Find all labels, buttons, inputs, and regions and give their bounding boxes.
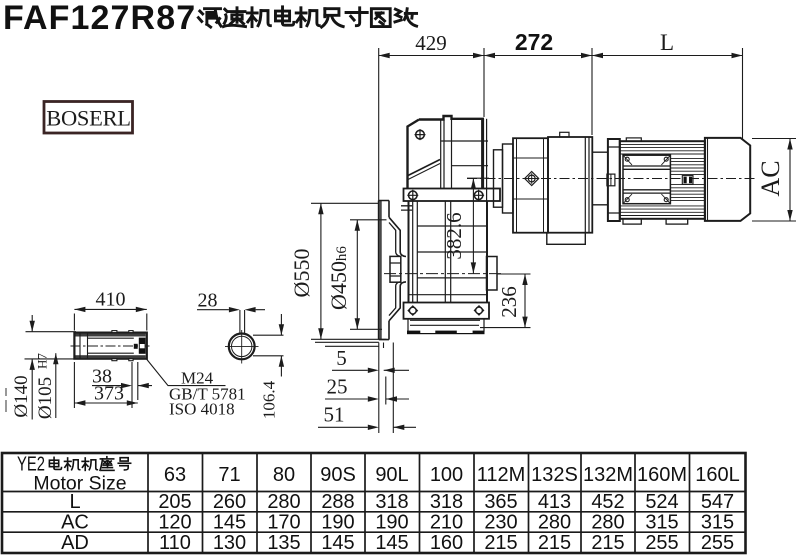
- svg-text:110: 110: [159, 532, 191, 554]
- svg-text:413: 413: [538, 491, 571, 513]
- svg-text:205: 205: [158, 491, 191, 513]
- svg-text:318: 318: [375, 491, 408, 513]
- svg-text:382.6: 382.6: [442, 212, 466, 259]
- svg-text:280: 280: [538, 512, 571, 534]
- svg-text:106.4: 106.4: [260, 380, 279, 419]
- svg-text:280: 280: [267, 491, 300, 513]
- svg-text:318: 318: [430, 491, 463, 513]
- svg-text:210: 210: [430, 512, 463, 534]
- svg-text:215: 215: [591, 532, 624, 554]
- svg-text:120: 120: [158, 512, 191, 534]
- svg-text:160M: 160M: [637, 464, 687, 486]
- svg-text:100: 100: [430, 464, 463, 486]
- svg-text:YE2: YE2: [17, 452, 45, 475]
- svg-text:429: 429: [415, 31, 447, 55]
- svg-text:AD: AD: [61, 532, 89, 554]
- svg-text:FAF127R87: FAF127R87: [3, 0, 196, 37]
- svg-text:280: 280: [591, 512, 624, 534]
- svg-text:315: 315: [701, 512, 734, 534]
- svg-text:130: 130: [213, 532, 246, 554]
- svg-text:524: 524: [645, 491, 678, 513]
- svg-text:5: 5: [336, 346, 347, 370]
- svg-text:190: 190: [321, 512, 354, 534]
- svg-text:Ø140: Ø140: [11, 375, 32, 417]
- svg-text:547: 547: [701, 491, 734, 513]
- svg-text:170: 170: [267, 512, 300, 534]
- svg-text:365: 365: [484, 491, 517, 513]
- svg-text:255: 255: [701, 532, 734, 554]
- svg-text:H7: H7: [35, 353, 50, 369]
- svg-text:215: 215: [484, 532, 517, 554]
- svg-text:145: 145: [321, 532, 354, 554]
- svg-text:71: 71: [218, 464, 240, 486]
- svg-text:145: 145: [375, 532, 408, 554]
- svg-text:51: 51: [324, 403, 345, 427]
- svg-text:L: L: [660, 30, 674, 55]
- svg-text:90L: 90L: [375, 464, 408, 486]
- svg-text:90S: 90S: [320, 464, 356, 486]
- svg-text:315: 315: [645, 512, 678, 534]
- svg-text:260: 260: [213, 491, 246, 513]
- svg-text:160: 160: [430, 532, 463, 554]
- svg-text:288: 288: [321, 491, 354, 513]
- svg-text:L: L: [69, 491, 80, 513]
- svg-text:Ø105: Ø105: [35, 377, 56, 419]
- svg-text:132M: 132M: [583, 464, 633, 486]
- svg-text:145: 145: [213, 512, 246, 534]
- svg-text:272: 272: [515, 29, 553, 55]
- svg-text:132S: 132S: [531, 464, 578, 486]
- svg-text:ISO 4018: ISO 4018: [169, 400, 235, 419]
- svg-text:112M: 112M: [477, 464, 526, 486]
- svg-text:190: 190: [375, 512, 408, 534]
- svg-text:AC: AC: [756, 160, 785, 196]
- svg-text:135: 135: [267, 532, 300, 554]
- svg-text:160L: 160L: [695, 464, 740, 486]
- svg-text:452: 452: [591, 491, 624, 513]
- svg-text:255: 255: [645, 532, 678, 554]
- svg-text:63: 63: [164, 464, 186, 486]
- svg-text:BOSERL: BOSERL: [46, 106, 130, 131]
- svg-text:AC: AC: [61, 512, 89, 534]
- svg-text:373: 373: [94, 383, 124, 405]
- svg-text:236: 236: [497, 286, 521, 318]
- svg-text:215: 215: [538, 532, 571, 554]
- svg-text:25: 25: [327, 375, 348, 399]
- svg-text:410: 410: [96, 289, 126, 311]
- svg-text:230: 230: [484, 512, 517, 534]
- svg-text:Ø450h6: Ø450h6: [326, 246, 351, 310]
- svg-text:Ø550: Ø550: [289, 249, 314, 298]
- svg-text:80: 80: [273, 464, 295, 486]
- svg-text:28: 28: [198, 290, 218, 312]
